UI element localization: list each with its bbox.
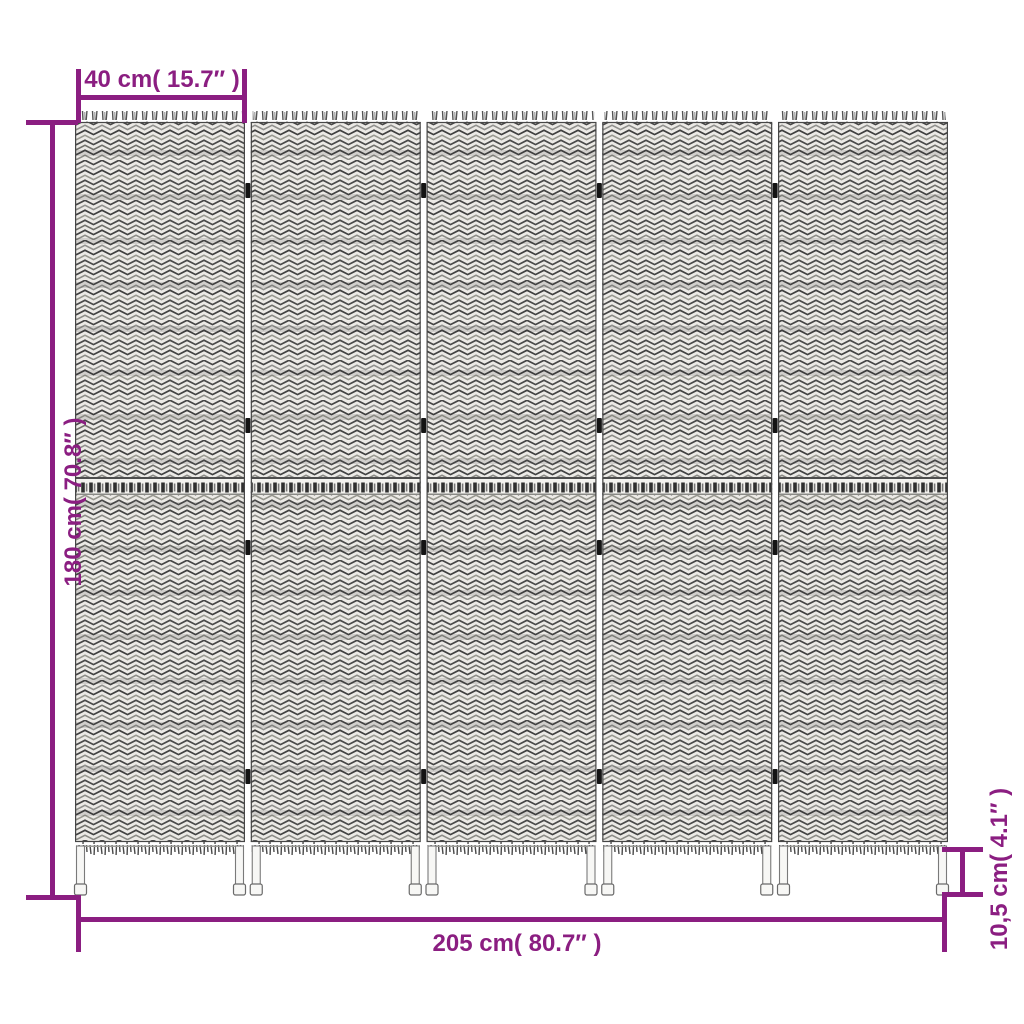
panel-foot-left xyxy=(602,884,614,895)
hinge-2-4 xyxy=(421,769,426,784)
hinge-2-1 xyxy=(421,183,426,198)
panel-mid-rail-top-edge xyxy=(252,477,420,479)
dim-leg-height-label: 10,5 cm( 4.1″ ) xyxy=(988,788,1012,950)
dim-total-width-tick-left xyxy=(76,895,81,952)
panel-leg-right xyxy=(763,846,771,885)
hinge-3-4 xyxy=(597,769,602,784)
dim-total-width-line xyxy=(76,917,947,922)
hinge-2-2 xyxy=(421,418,426,433)
panel-foot-left xyxy=(250,884,262,895)
dim-total-width-label: 205 cm( 80.7″ ) xyxy=(433,932,602,956)
panel-top-fringe xyxy=(253,111,419,122)
dim-height-line xyxy=(50,122,55,900)
panel-mid-rail-top-edge xyxy=(603,477,771,479)
hinge-3-1 xyxy=(597,183,602,198)
hinge-1-2 xyxy=(245,418,250,433)
hinge-3-3 xyxy=(597,540,602,555)
panel-mid-rail-top-edge xyxy=(76,477,244,479)
panel-mid-rail-top-edge xyxy=(779,477,947,479)
panel-bottom-fringe xyxy=(779,842,947,855)
panels-group xyxy=(75,111,949,895)
panel-4 xyxy=(602,111,773,895)
panel-foot-left xyxy=(778,884,790,895)
panel-mid-rail-strand-ends xyxy=(76,480,244,493)
panel-mid-rail-bottom-edge xyxy=(428,494,596,496)
hinge-4-1 xyxy=(773,183,778,198)
panel-5 xyxy=(778,111,949,895)
panel-foot-right xyxy=(409,884,421,895)
dim-height-tick-bottom xyxy=(26,895,78,900)
panel-foot-right xyxy=(761,884,773,895)
panel-mid-rail-top-edge xyxy=(428,477,596,479)
panel-1 xyxy=(75,111,246,895)
hinge-1-4 xyxy=(245,769,250,784)
panel-top-fringe xyxy=(780,111,946,122)
panel-bottom-rail xyxy=(252,846,420,848)
panel-mid-rail-strand-ends xyxy=(252,480,420,493)
hinge-4-2 xyxy=(773,418,778,433)
room-divider-graphic xyxy=(0,0,1024,1024)
panel-mid-rail-strand-ends xyxy=(603,480,771,493)
panel-foot-left xyxy=(426,884,438,895)
panel-leg-left xyxy=(77,846,85,885)
hinge-1-3 xyxy=(245,540,250,555)
panel-mid-rail-strand-ends xyxy=(779,480,947,493)
panel-mid-rail-strand-ends xyxy=(428,480,596,493)
panel-mid-rail-bottom-edge xyxy=(779,494,947,496)
panel-3 xyxy=(426,111,597,895)
panel-2 xyxy=(250,111,421,895)
panel-leg-left xyxy=(252,846,260,885)
panel-mid-rail-bottom-edge xyxy=(603,494,771,496)
panel-bottom-rail xyxy=(76,846,244,848)
dim-panel-width-label: 40 cm( 15.7″ ) xyxy=(84,68,240,92)
panel-leg-left xyxy=(604,846,612,885)
panel-foot-right xyxy=(585,884,597,895)
dim-leg-height-connector xyxy=(960,847,965,897)
panel-bottom-fringe xyxy=(76,842,244,855)
panel-top-fringe xyxy=(77,111,243,122)
panel-top-fringe xyxy=(604,111,770,122)
panel-leg-left xyxy=(428,846,436,885)
panel-bottom-rail xyxy=(428,846,596,848)
hinge-4-3 xyxy=(773,540,778,555)
panel-leg-left xyxy=(780,846,788,885)
panel-leg-right xyxy=(587,846,595,885)
panel-leg-right xyxy=(236,846,244,885)
panel-bottom-rail xyxy=(603,846,771,848)
dim-height-tick-top xyxy=(26,120,78,125)
hinge-2-3 xyxy=(421,540,426,555)
panel-foot-left xyxy=(75,884,87,895)
dim-height-label: 180 cm( 70.8″ ) xyxy=(62,418,86,587)
panel-mid-rail-bottom-edge xyxy=(252,494,420,496)
product-dimension-diagram: 40 cm( 15.7″ ) 180 cm( 70.8″ ) 205 cm( 8… xyxy=(0,0,1024,1024)
hinge-4-4 xyxy=(773,769,778,784)
panel-mid-rail-bottom-edge xyxy=(76,494,244,496)
panel-bottom-fringe xyxy=(252,842,420,855)
panel-foot-right xyxy=(234,884,246,895)
hinge-3-2 xyxy=(597,418,602,433)
panel-bottom-fringe xyxy=(603,842,771,855)
panel-bottom-rail xyxy=(779,846,947,848)
dim-panel-width-line xyxy=(76,95,247,100)
panel-top-fringe xyxy=(429,111,595,122)
panel-leg-right xyxy=(411,846,419,885)
hinge-1-1 xyxy=(245,183,250,198)
panel-bottom-fringe xyxy=(428,842,596,855)
dim-total-width-tick-right xyxy=(942,895,947,952)
